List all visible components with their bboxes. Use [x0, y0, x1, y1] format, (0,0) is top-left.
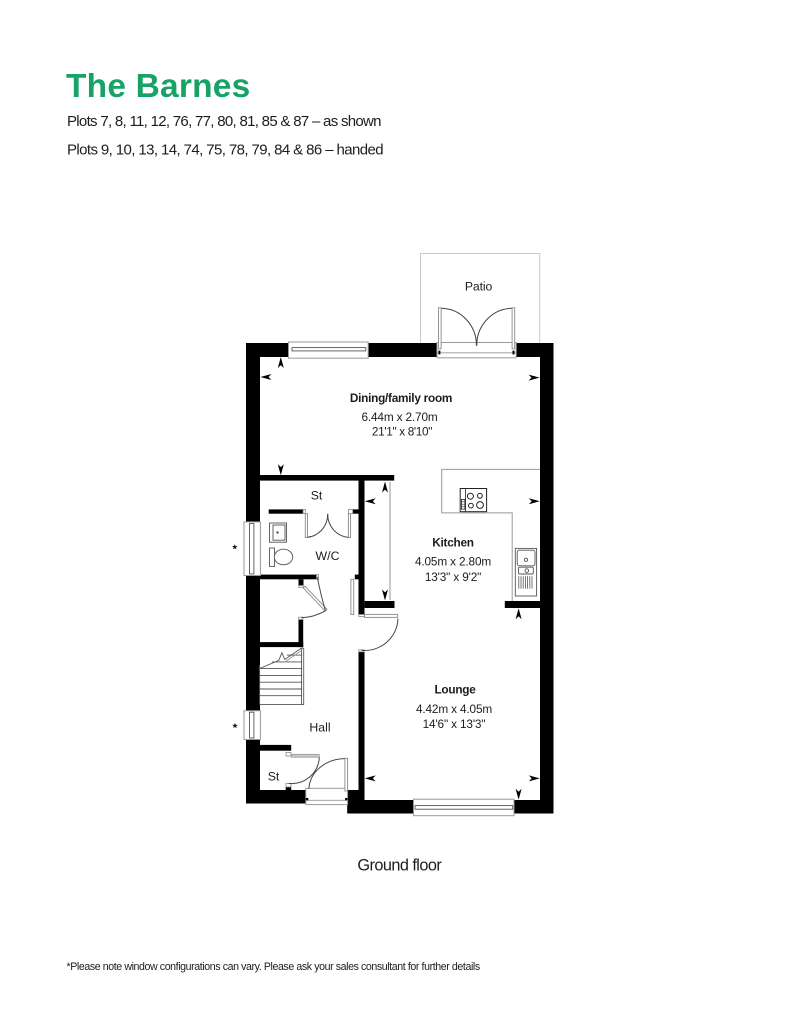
svg-text:4.42m x 4.05m: 4.42m x 4.05m: [416, 702, 492, 716]
svg-text:Kitchen: Kitchen: [432, 536, 474, 550]
svg-text:Plots 7, 8, 11, 12, 76, 77, 80: Plots 7, 8, 11, 12, 76, 77, 80, 81, 85 &…: [67, 113, 381, 130]
svg-text:6.44m x 2.70m: 6.44m x 2.70m: [361, 410, 437, 424]
svg-text:W/C: W/C: [316, 549, 340, 563]
svg-text:*Please note window configurat: *Please note window configurations can v…: [67, 961, 480, 973]
svg-text:St: St: [268, 770, 280, 784]
svg-text:Dining/family room: Dining/family room: [350, 391, 452, 405]
svg-text:Ground floor: Ground floor: [357, 857, 442, 875]
svg-text:Plots 9, 10, 13, 14, 74, 75, 7: Plots 9, 10, 13, 14, 74, 75, 78, 79, 84 …: [67, 142, 383, 159]
svg-text:Hall: Hall: [309, 721, 330, 735]
svg-text:14'6" x 13'3": 14'6" x 13'3": [423, 717, 486, 731]
svg-text:21'1" x 8'10": 21'1" x 8'10": [372, 425, 432, 439]
svg-text:The Barnes: The Barnes: [66, 68, 250, 105]
svg-text:St: St: [311, 489, 323, 503]
svg-text:13'3" x 9'2": 13'3" x 9'2": [425, 570, 481, 584]
svg-text:Lounge: Lounge: [434, 683, 476, 697]
svg-text:Patio: Patio: [465, 280, 493, 294]
svg-text:4.05m x 2.80m: 4.05m x 2.80m: [415, 555, 491, 569]
